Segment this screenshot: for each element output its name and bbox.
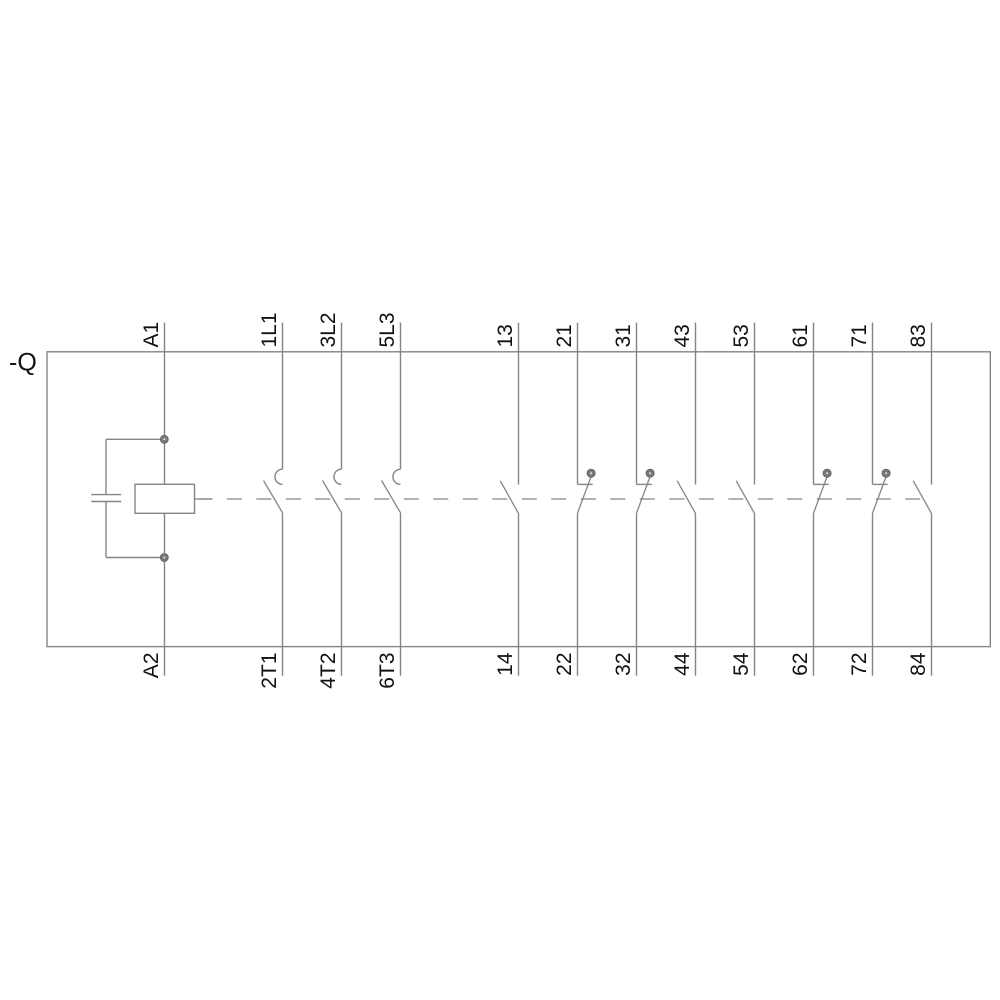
svg-text:84: 84 bbox=[907, 652, 930, 676]
svg-text:32: 32 bbox=[612, 653, 635, 676]
svg-text:83: 83 bbox=[907, 324, 930, 347]
svg-text:2T1: 2T1 bbox=[258, 653, 281, 689]
svg-text:6T3: 6T3 bbox=[376, 653, 399, 689]
svg-text:5L3: 5L3 bbox=[376, 312, 399, 347]
svg-text:53: 53 bbox=[730, 324, 753, 347]
svg-text:3L2: 3L2 bbox=[317, 312, 340, 347]
svg-text:54: 54 bbox=[730, 652, 753, 676]
svg-text:A1: A1 bbox=[140, 322, 163, 348]
svg-text:14: 14 bbox=[494, 652, 517, 676]
svg-text:13: 13 bbox=[494, 324, 517, 347]
svg-text:62: 62 bbox=[789, 653, 812, 676]
svg-text:-Q: -Q bbox=[9, 349, 37, 377]
svg-text:4T2: 4T2 bbox=[317, 653, 340, 689]
svg-text:A2: A2 bbox=[140, 653, 163, 679]
svg-text:22: 22 bbox=[553, 653, 576, 676]
svg-text:72: 72 bbox=[848, 653, 871, 676]
svg-text:1L1: 1L1 bbox=[258, 312, 281, 347]
svg-text:43: 43 bbox=[671, 324, 694, 347]
svg-text:71: 71 bbox=[848, 324, 871, 347]
svg-text:31: 31 bbox=[612, 324, 635, 347]
svg-text:61: 61 bbox=[789, 324, 812, 347]
svg-text:44: 44 bbox=[671, 652, 694, 676]
svg-text:21: 21 bbox=[553, 324, 576, 347]
